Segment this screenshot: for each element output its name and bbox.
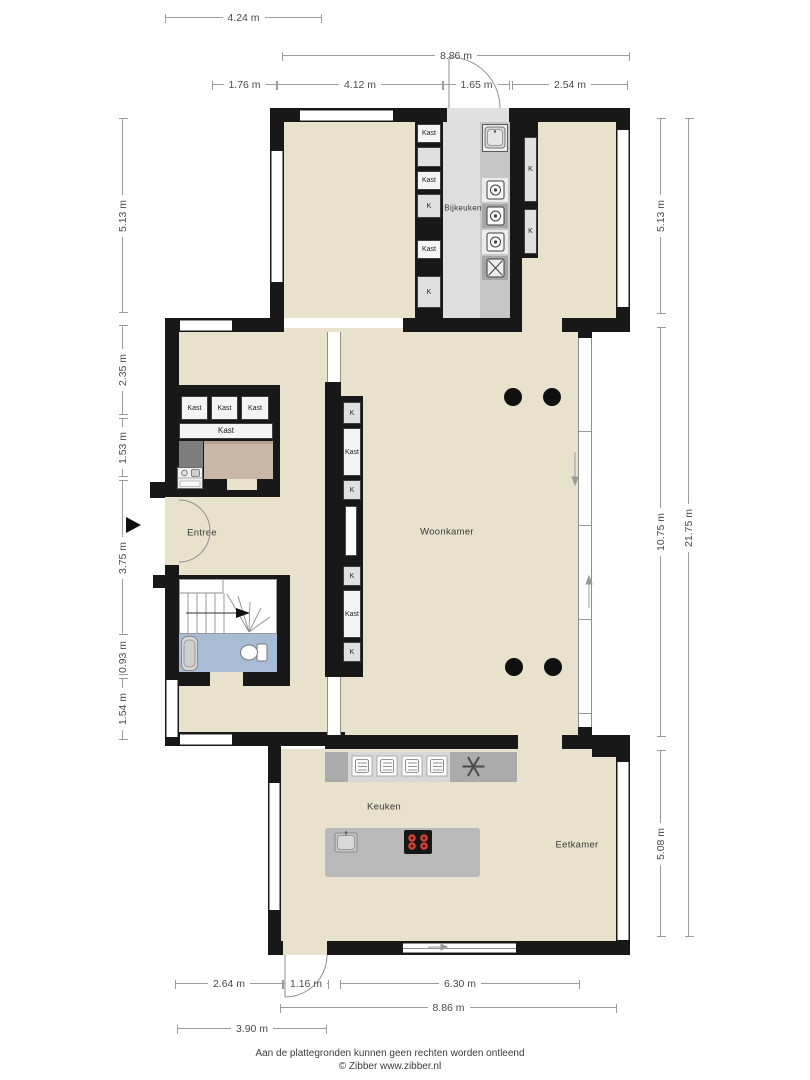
window bbox=[271, 151, 283, 282]
dimension-top-6: 2.54 m bbox=[512, 84, 628, 85]
entrance-arrow-icon bbox=[126, 517, 141, 533]
closet-label: Kast bbox=[422, 130, 436, 137]
sliding-window bbox=[403, 943, 516, 953]
closet-label: K bbox=[350, 573, 355, 580]
dimension-top-3: 1.76 m bbox=[212, 84, 277, 85]
kitchen-counter bbox=[348, 752, 450, 782]
dimension-right-1: 5.13 m bbox=[660, 118, 661, 314]
utility-counter bbox=[177, 467, 203, 489]
room-label-keuken: Keuken bbox=[367, 802, 401, 813]
room-label-bijkeuken: Bijkeuken bbox=[444, 204, 481, 213]
closet-k: K bbox=[343, 566, 361, 586]
window bbox=[166, 680, 178, 737]
dimension-top-4: 4.12 m bbox=[277, 84, 443, 85]
window bbox=[617, 762, 629, 940]
dimension-left-2: 2.35 m bbox=[122, 325, 123, 415]
glass-partition bbox=[327, 677, 341, 735]
dimension-top-2: 8.86 m bbox=[282, 55, 630, 56]
footer-credit: © Zibber www.zibber.nl bbox=[0, 1060, 780, 1073]
room-label-eetkamer: Eetkamer bbox=[555, 840, 598, 851]
wall bbox=[325, 735, 630, 749]
wall-door-jamb bbox=[150, 482, 179, 498]
dimension-bottom-5: 3.90 m bbox=[177, 1028, 327, 1029]
closet-label: Kast bbox=[217, 405, 231, 412]
dimension-label: 2.35 m bbox=[117, 349, 129, 391]
window bbox=[617, 130, 629, 307]
closet-label: Kast bbox=[422, 246, 436, 253]
closet-k: K bbox=[343, 402, 361, 424]
closet-label: Kast bbox=[248, 405, 262, 412]
appliance-box bbox=[482, 204, 508, 228]
room-opening bbox=[518, 729, 562, 755]
kitchen-counter bbox=[450, 752, 517, 782]
closet-label: K bbox=[350, 649, 355, 656]
closet-k: K bbox=[343, 480, 361, 500]
dimension-right-4: 21.75 m bbox=[688, 118, 689, 937]
column-dot bbox=[504, 388, 522, 406]
dimension-top-1: 4.24 m bbox=[165, 17, 322, 18]
sliding-glass-wall bbox=[578, 338, 592, 727]
dimension-top-5: 1.65 m bbox=[443, 84, 510, 85]
closet-shelf bbox=[417, 147, 441, 167]
storage-room bbox=[204, 441, 273, 479]
closet-kast: Kast bbox=[417, 124, 441, 143]
dimension-label: 1.76 m bbox=[223, 79, 265, 91]
closet-label: Kast bbox=[345, 611, 359, 618]
dimension-label: 5.13 m bbox=[655, 195, 667, 237]
dimension-left-5: 0.93 m bbox=[122, 638, 123, 675]
dimension-label: 1.16 m bbox=[285, 978, 327, 990]
window bbox=[180, 320, 232, 331]
closet-label: K bbox=[528, 166, 533, 173]
room-label-entree: Entree bbox=[187, 528, 217, 539]
closet-label: Kast bbox=[422, 177, 436, 184]
closet-kast: Kast bbox=[417, 171, 441, 190]
wall bbox=[403, 318, 630, 332]
wall-door-jamb bbox=[153, 575, 180, 588]
window bbox=[180, 734, 232, 745]
bathroom-door-opening bbox=[210, 672, 243, 686]
dimension-left-4: 3.75 m bbox=[122, 480, 123, 635]
kitchen-island bbox=[325, 828, 480, 877]
column-dot bbox=[505, 658, 523, 676]
closet-kast: Kast bbox=[417, 240, 441, 259]
column-dot bbox=[543, 388, 561, 406]
column-dot bbox=[544, 658, 562, 676]
closet-label: K bbox=[427, 203, 432, 210]
window bbox=[269, 783, 280, 910]
dimension-bottom-3: 6.30 m bbox=[340, 983, 580, 984]
door-opening bbox=[283, 941, 327, 955]
dimension-label: 2.54 m bbox=[549, 79, 591, 91]
footer-disclaimer: Aan de plattegronden kunnen geen rechten… bbox=[0, 1047, 780, 1060]
window bbox=[300, 110, 393, 121]
dimension-label: 3.90 m bbox=[231, 1023, 273, 1035]
closet-k: K bbox=[524, 209, 537, 254]
glass-partition bbox=[327, 332, 341, 382]
closet-k: K bbox=[417, 194, 441, 218]
closet-kast: Kast bbox=[211, 396, 238, 420]
sink-box bbox=[482, 124, 508, 152]
dimension-label: 6.30 m bbox=[439, 978, 481, 990]
dimension-left-6: 1.54 m bbox=[122, 678, 123, 740]
appliance-box bbox=[482, 230, 508, 254]
wall-living-closet-spine bbox=[325, 382, 341, 677]
closet-label: K bbox=[350, 487, 355, 494]
appliance-box bbox=[482, 178, 508, 202]
dimension-label: 4.24 m bbox=[222, 12, 264, 24]
dimension-left-1: 5.13 m bbox=[122, 118, 123, 313]
wall bbox=[510, 122, 522, 318]
closet-label: K bbox=[427, 289, 432, 296]
dimension-label: 2.64 m bbox=[208, 978, 250, 990]
closet-kast: Kast bbox=[181, 396, 208, 420]
closet-kast: Kast bbox=[343, 590, 361, 638]
dimension-bottom-1: 2.64 m bbox=[175, 983, 283, 984]
dimension-label: 10.75 m bbox=[655, 508, 667, 556]
floorplan-canvas: 4.24 m 8.86 m 1.76 m 4.12 m 1.65 m 2.54 … bbox=[0, 0, 810, 1080]
dimension-label: 4.12 m bbox=[339, 79, 381, 91]
dimension-bottom-4: 8.86 m bbox=[280, 1007, 617, 1008]
technical-closet bbox=[179, 441, 203, 467]
dimension-label: 3.75 m bbox=[117, 536, 129, 578]
closet-label: Kast bbox=[345, 449, 359, 456]
closet-kast: Kast bbox=[343, 428, 361, 476]
closet-label: K bbox=[350, 410, 355, 417]
dimension-label: 1.53 m bbox=[117, 426, 129, 468]
dimension-left-3: 1.53 m bbox=[122, 418, 123, 477]
floor-bathroom bbox=[179, 634, 277, 672]
staircase bbox=[179, 579, 277, 634]
appliance-box bbox=[482, 256, 508, 280]
dimension-label: 0.93 m bbox=[117, 635, 129, 677]
closet-label: Kast bbox=[187, 405, 201, 412]
closet-k: K bbox=[524, 137, 537, 202]
dimension-label: 21.75 m bbox=[683, 504, 695, 552]
dimension-right-3: 5.08 m bbox=[660, 750, 661, 937]
closet-k: K bbox=[417, 276, 441, 308]
room-opening bbox=[522, 318, 562, 332]
dimension-label: 5.13 m bbox=[117, 194, 129, 236]
entree-door-opening bbox=[165, 497, 179, 565]
closet-k: K bbox=[343, 642, 361, 662]
dimension-bottom-2: 1.16 m bbox=[283, 983, 329, 984]
dimension-right-2: 10.75 m bbox=[660, 327, 661, 737]
dimension-label: 8.86 m bbox=[427, 1002, 469, 1014]
kitchen-counter bbox=[325, 752, 348, 782]
closet-kast-wide: Kast bbox=[179, 423, 273, 439]
closet-label: K bbox=[528, 228, 533, 235]
dimension-label: 1.65 m bbox=[455, 79, 497, 91]
dimension-label: 1.54 m bbox=[117, 688, 129, 730]
closet-label: Kast bbox=[218, 427, 234, 435]
dimension-label: 5.08 m bbox=[655, 822, 667, 864]
door-opening bbox=[447, 108, 509, 122]
dimension-label: 8.86 m bbox=[435, 50, 477, 62]
closet-kast: Kast bbox=[241, 396, 269, 420]
room-label-woonkamer: Woonkamer bbox=[420, 527, 474, 538]
wall-niche bbox=[345, 506, 357, 556]
